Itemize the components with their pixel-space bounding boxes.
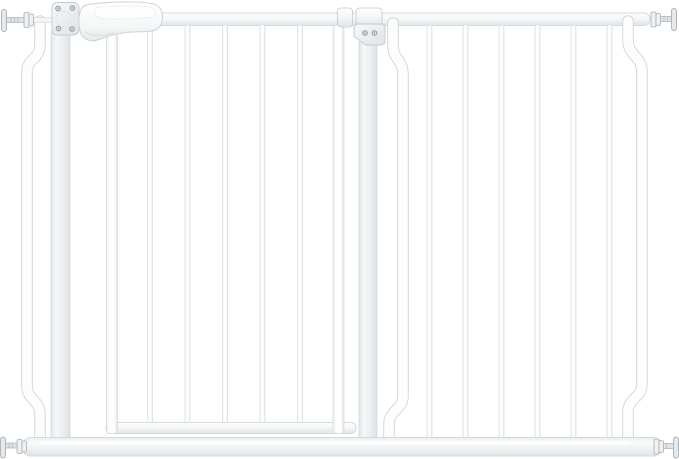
bottom-rail-highlight [40, 441, 630, 445]
latch-post [51, 30, 70, 440]
extension-bar [535, 25, 540, 440]
hinge-screw-hole [364, 32, 365, 33]
hinge-post [359, 40, 377, 440]
door-bar [298, 25, 303, 424]
bolt-head [672, 9, 677, 31]
bolt-head [2, 10, 7, 32]
gate-illustration [0, 0, 679, 459]
door-bar [260, 25, 265, 424]
extension-panel [427, 25, 612, 440]
extension-bar [463, 25, 468, 440]
latch-screw-hole [71, 28, 72, 29]
extension-bar [571, 25, 576, 440]
bolt-nut [656, 14, 661, 26]
hinge-stile-cap [338, 8, 353, 27]
hinge-screw-hole [374, 32, 375, 33]
door-bottom-rail [106, 423, 356, 434]
bolt-shaft [663, 444, 674, 449]
bolt-nut [24, 13, 29, 28]
bolt-nut [654, 439, 659, 454]
hinge-plate [354, 24, 385, 45]
latch-screw-hole [72, 7, 73, 8]
extension-bar [427, 25, 432, 440]
door-right-stile [333, 25, 344, 434]
handle-grip-highlight [94, 6, 156, 19]
bolt-nut [651, 12, 656, 27]
pressure-bolt-top-left [2, 10, 56, 32]
extension-bar [607, 25, 612, 440]
door-bar [185, 25, 190, 424]
door-bar [148, 25, 153, 424]
left-outer-tube [27, 21, 40, 441]
baby-gate-product-photo [0, 0, 679, 459]
pressure-bolt-bottom-left [1, 437, 27, 458]
hinge-assembly [338, 8, 386, 45]
latch-handle-assembly [52, 2, 163, 41]
door-left-stile [107, 25, 118, 434]
bolt-nut [29, 14, 34, 26]
bolt-head [674, 437, 679, 458]
extension-side-tube [389, 23, 403, 441]
latch-screw-hole [57, 8, 58, 9]
latch-screw-hole [58, 28, 59, 29]
bolt-nut [17, 440, 22, 454]
right-outer-tube [628, 21, 642, 441]
pressure-bolt-top-right [651, 9, 677, 31]
door-bar [223, 25, 228, 424]
bottom-rail [22, 438, 662, 457]
bolt-head [1, 437, 6, 458]
bolt-nut [659, 441, 664, 453]
door-panel [148, 25, 303, 424]
extension-bar [499, 25, 504, 440]
bolt-nut [22, 441, 27, 452]
